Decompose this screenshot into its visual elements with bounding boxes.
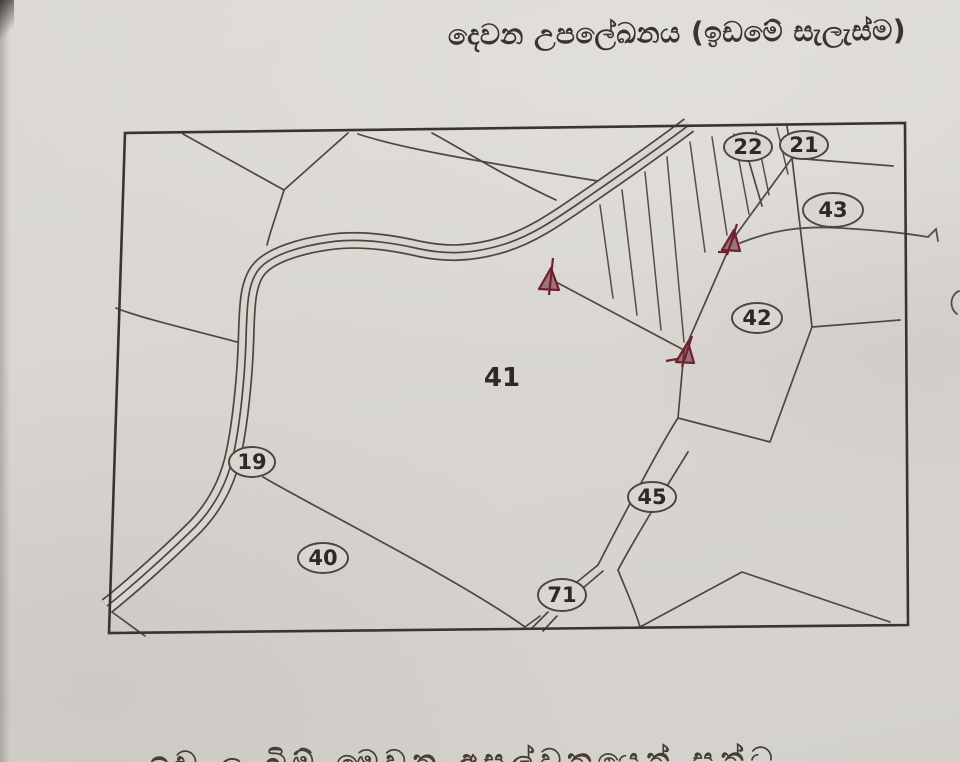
lot-labels: 222143424119404571	[229, 131, 863, 611]
lot-label-21: 21	[780, 131, 828, 159]
lot-label-45: 45	[628, 482, 676, 512]
lot-number-42: 42	[742, 306, 771, 330]
lot-label-41: 41	[484, 363, 520, 393]
lot-label-71: 71	[538, 579, 586, 611]
lot-label-40: 40	[298, 543, 348, 573]
lot-number-43: 43	[818, 198, 847, 222]
annotation-curves	[740, 227, 959, 314]
lot-number-19: 19	[237, 450, 266, 474]
lot-label-22: 22	[724, 133, 772, 161]
lot-number-41: 41	[484, 363, 520, 393]
lot-number-21: 21	[789, 133, 818, 157]
lot-number-71: 71	[547, 583, 576, 607]
land-plan-map: 222143424119404571	[0, 0, 960, 762]
survey-marker-2	[718, 224, 740, 255]
scanned-land-plan-page: දෙවන උපලේඛනය (ඉඩමේ සැලැස්ම)	[0, 0, 960, 762]
lot-number-45: 45	[637, 485, 666, 509]
lot-label-42: 42	[732, 303, 782, 333]
lot-number-40: 40	[308, 546, 337, 570]
partial-ellipse-right-edge	[951, 291, 959, 314]
lot-number-22: 22	[733, 135, 762, 159]
survey-markers	[539, 224, 740, 367]
survey-marker-3	[666, 336, 694, 367]
road	[107, 125, 689, 606]
survey-marker-1	[539, 258, 559, 295]
lot-label-19: 19	[229, 447, 275, 477]
lot-label-43: 43	[803, 193, 863, 227]
